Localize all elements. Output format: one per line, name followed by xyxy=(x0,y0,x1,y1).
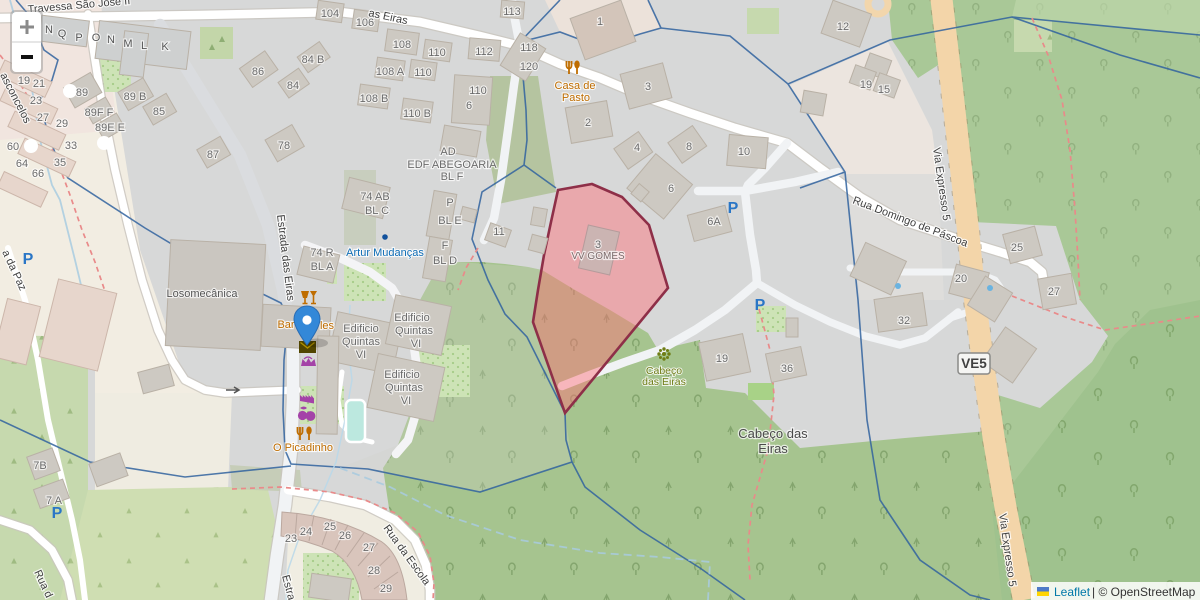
svg-text:Edificio: Edificio xyxy=(394,312,429,324)
svg-text:89: 89 xyxy=(76,87,88,99)
svg-text:2: 2 xyxy=(585,117,591,129)
svg-text:29: 29 xyxy=(56,118,68,130)
svg-text:32: 32 xyxy=(898,315,910,327)
svg-text:35: 35 xyxy=(54,157,66,169)
svg-text:110: 110 xyxy=(469,85,487,97)
svg-text:les: les xyxy=(320,320,335,332)
svg-text:19: 19 xyxy=(860,79,872,91)
svg-text:Leaflet: Leaflet xyxy=(1054,585,1091,599)
svg-text:L: L xyxy=(141,40,147,52)
svg-text:P: P xyxy=(755,297,766,314)
svg-text:19: 19 xyxy=(18,75,30,87)
svg-text:3: 3 xyxy=(595,239,601,251)
svg-text:85: 85 xyxy=(153,106,165,118)
svg-text:BL E: BL E xyxy=(438,215,461,227)
svg-text:Casa de: Casa de xyxy=(555,80,596,92)
svg-text:87: 87 xyxy=(207,149,219,161)
svg-text:60: 60 xyxy=(7,141,19,153)
svg-text:64: 64 xyxy=(16,158,28,170)
svg-text:1: 1 xyxy=(597,16,603,28)
svg-text:110: 110 xyxy=(414,67,432,79)
svg-text:P: P xyxy=(446,197,453,209)
svg-text:86: 86 xyxy=(252,66,264,78)
svg-text:28: 28 xyxy=(368,565,380,577)
svg-text:P: P xyxy=(52,505,63,522)
svg-text:N: N xyxy=(107,34,115,46)
svg-text:M: M xyxy=(123,38,132,50)
svg-text:O Picadinho: O Picadinho xyxy=(273,442,333,454)
svg-text:N: N xyxy=(45,24,53,36)
svg-text:108 B: 108 B xyxy=(360,93,389,105)
svg-text:6: 6 xyxy=(668,183,674,195)
svg-text:112: 112 xyxy=(475,46,493,58)
svg-text:26: 26 xyxy=(339,530,351,542)
svg-text:Quintas: Quintas xyxy=(342,336,380,348)
svg-text:Artur Mudanças: Artur Mudanças xyxy=(346,247,424,259)
svg-text:8: 8 xyxy=(686,141,692,153)
svg-text:BL C: BL C xyxy=(365,205,389,217)
svg-text:89F F: 89F F xyxy=(85,107,114,119)
svg-text:120: 120 xyxy=(520,61,538,73)
svg-text:12: 12 xyxy=(837,21,849,33)
svg-text:Eiras: Eiras xyxy=(758,441,788,456)
svg-text:7B: 7B xyxy=(33,460,46,472)
svg-text:89 B: 89 B xyxy=(124,91,147,103)
svg-text:23: 23 xyxy=(30,95,42,107)
svg-text:BL F: BL F xyxy=(441,171,464,183)
svg-text:27: 27 xyxy=(1048,286,1060,298)
svg-text:29: 29 xyxy=(380,583,392,595)
svg-text:BL A: BL A xyxy=(311,261,334,273)
svg-text:7 A: 7 A xyxy=(46,495,63,507)
svg-text:4: 4 xyxy=(634,142,640,154)
svg-text:113: 113 xyxy=(503,6,521,18)
svg-text:P: P xyxy=(23,251,34,268)
svg-text:84 B: 84 B xyxy=(302,54,325,66)
svg-text:118: 118 xyxy=(520,42,538,54)
svg-text:3: 3 xyxy=(645,81,651,93)
svg-text:VV GOMES: VV GOMES xyxy=(571,251,625,262)
svg-text:21: 21 xyxy=(33,78,45,90)
svg-text:Bar: Bar xyxy=(277,319,294,331)
svg-text:VE5: VE5 xyxy=(961,356,987,371)
svg-text:104: 104 xyxy=(321,8,339,20)
svg-text:Quintas: Quintas xyxy=(395,325,433,337)
svg-text:108: 108 xyxy=(393,39,411,51)
svg-text:78: 78 xyxy=(278,140,290,152)
svg-text:74 R: 74 R xyxy=(310,247,333,259)
svg-text:20: 20 xyxy=(955,273,967,285)
svg-text:23: 23 xyxy=(285,533,297,545)
svg-text:66: 66 xyxy=(32,168,44,180)
svg-text:VI: VI xyxy=(401,395,411,407)
svg-text:VI: VI xyxy=(356,349,366,361)
svg-text:33: 33 xyxy=(65,140,77,152)
svg-text:6: 6 xyxy=(466,100,472,112)
svg-text:VI: VI xyxy=(411,338,421,350)
svg-text:AD: AD xyxy=(440,146,455,158)
svg-text:das Eiras: das Eiras xyxy=(642,376,686,388)
svg-text:36: 36 xyxy=(781,363,793,375)
svg-text:110: 110 xyxy=(428,47,446,59)
svg-text:24: 24 xyxy=(300,526,312,538)
svg-text:Pasto: Pasto xyxy=(562,92,590,104)
svg-text:K: K xyxy=(161,41,169,53)
svg-text:27: 27 xyxy=(363,542,375,554)
svg-text:Edificio: Edificio xyxy=(384,369,419,381)
svg-text:25: 25 xyxy=(1011,242,1023,254)
svg-text:F: F xyxy=(442,240,449,252)
svg-text:Quintas: Quintas xyxy=(385,382,423,394)
svg-text:89E E: 89E E xyxy=(95,122,125,134)
svg-text:Losomecânica: Losomecânica xyxy=(167,288,239,300)
svg-text:O: O xyxy=(92,32,101,44)
svg-text:BL D: BL D xyxy=(433,255,457,267)
svg-text:| © OpenStreetMap: | © OpenStreetMap xyxy=(1092,585,1196,599)
svg-text:Cabeço das: Cabeço das xyxy=(738,426,808,441)
svg-text:84: 84 xyxy=(287,80,299,92)
svg-text:P: P xyxy=(728,200,739,217)
svg-text:EDF ABEGOARIA: EDF ABEGOARIA xyxy=(407,159,497,171)
svg-text:106: 106 xyxy=(356,17,374,29)
svg-text:15: 15 xyxy=(878,84,890,96)
svg-text:Edificio: Edificio xyxy=(343,323,378,335)
svg-text:Q: Q xyxy=(58,28,67,40)
svg-text:27: 27 xyxy=(37,112,49,124)
svg-text:10: 10 xyxy=(738,146,750,158)
svg-text:74 AB: 74 AB xyxy=(360,191,389,203)
svg-text:11: 11 xyxy=(493,226,504,238)
svg-text:19: 19 xyxy=(716,353,728,365)
svg-text:110 B: 110 B xyxy=(403,108,431,120)
svg-text:6A: 6A xyxy=(707,216,721,228)
svg-text:108 A: 108 A xyxy=(376,66,405,78)
svg-text:25: 25 xyxy=(324,521,336,533)
svg-text:P: P xyxy=(75,32,82,44)
